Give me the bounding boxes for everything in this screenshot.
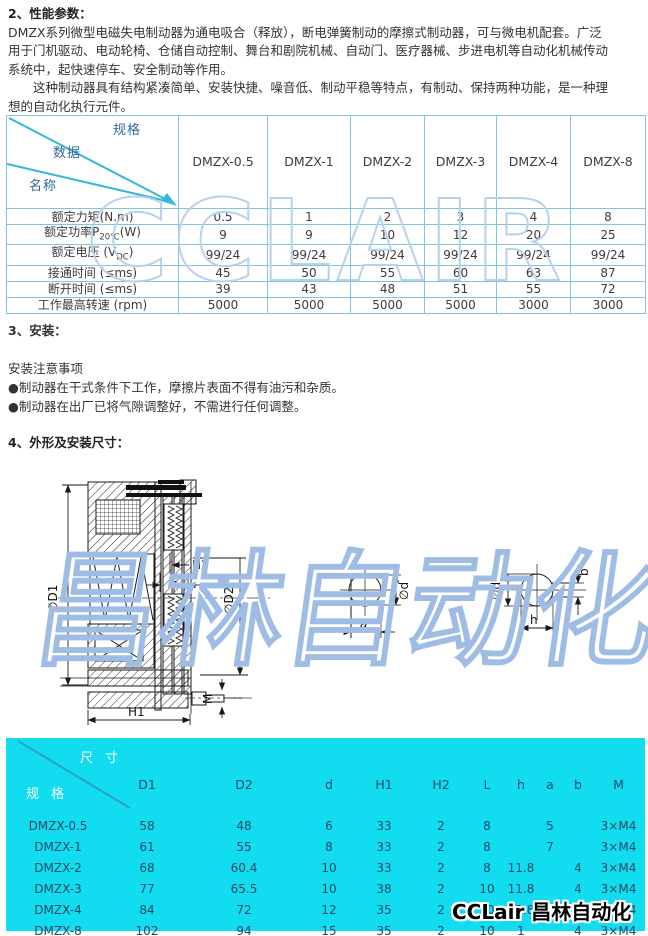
- spec-value-cell: 8: [304, 837, 354, 858]
- dim-label-d2: ∅D2: [222, 587, 236, 614]
- perf-value-cell: 72: [571, 281, 646, 297]
- perf-value-cell: 48: [351, 281, 425, 297]
- spec-model-cell: DMZX-0.5: [6, 816, 110, 837]
- brand-logo: CCLair 昌林自动化: [452, 896, 631, 925]
- perf-value-cell: 3: [425, 209, 497, 225]
- intro-line: 用于门机驱动、电动轮椅、仓储自动控制、舞台和剧院机械、自动门、医疗器械、步进电机…: [8, 42, 644, 61]
- model-header-row: 规格 数据 名称 DMZX-0.5DMZX-1DMZX-2DMZX-3DMZX-…: [7, 116, 646, 209]
- dim-label-d1: ∅D1: [46, 585, 60, 612]
- spec-value-cell: 10: [304, 858, 354, 879]
- dim-label-l: L: [170, 571, 177, 585]
- spec-value-cell: 33: [354, 816, 414, 837]
- intro-line: 想的自动化执行元件。: [8, 98, 644, 117]
- intro-paragraph: DMZX系列微型电磁失电制动器为通电吸合（释放），断电弹簧制动的摩擦式制动器，可…: [8, 24, 644, 117]
- spec-model-cell: DMZX-1: [6, 837, 110, 858]
- section3-title: 3、安装：: [8, 321, 638, 340]
- perf-value-cell: 99/24: [571, 245, 646, 265]
- spec-value-cell: 60.4: [184, 858, 304, 879]
- spec-value-cell: 2: [414, 816, 468, 837]
- spec-value-cell: 33: [354, 837, 414, 858]
- spec-value-cell: 3×M4: [592, 837, 645, 858]
- dim-label-da: ∅d: [397, 582, 411, 600]
- spec-column-header: a: [536, 738, 564, 816]
- dim-label-m: M: [201, 694, 215, 704]
- spec-value-cell: 4: [564, 858, 592, 879]
- perf-value-cell: 12: [425, 225, 497, 245]
- perf-value-cell: 55: [351, 265, 425, 281]
- perf-value-cell: 5000: [425, 297, 497, 313]
- performance-section: 2、性能参数： DMZX系列微型电磁失电制动器为通电吸合（释放），断电弹簧制动的…: [8, 5, 644, 116]
- spec-value-cell: 65.5: [184, 879, 304, 900]
- spec-value-cell: 5: [536, 816, 564, 837]
- dim-label-h2: H2: [192, 558, 209, 572]
- perf-value-cell: 0.5: [179, 209, 268, 225]
- install-section: 3、安装： 安装注意事项 ●制动器在干式条件下工作，摩擦片表面不得有油污和杂质。…: [8, 321, 638, 416]
- perf-value-cell: 87: [571, 265, 646, 281]
- perf-value-cell: 99/24: [268, 245, 351, 265]
- perf-value-cell: 8: [571, 209, 646, 225]
- dim-label-h: h: [530, 613, 538, 627]
- performance-table: 规格 数据 名称 DMZX-0.5DMZX-1DMZX-2DMZX-3DMZX-…: [6, 115, 646, 314]
- spec-value-cell: 8: [468, 816, 506, 837]
- spec-table-row: DMZX-161558332873×M4: [6, 837, 645, 858]
- spec-value-cell: 7: [536, 837, 564, 858]
- spec-value-cell: 33: [354, 858, 414, 879]
- install-note: ●制动器在出厂已将气隙调整好，不需进行任何调整。: [8, 397, 638, 416]
- dim-label-h1: H1: [128, 705, 145, 719]
- spec-value-cell: 2: [414, 837, 468, 858]
- spec-table-row: DMZX-0.558486332853×M4: [6, 816, 645, 837]
- spec-value-cell: 72: [184, 900, 304, 921]
- spec-value-cell: [564, 837, 592, 858]
- perf-value-cell: 4: [497, 209, 571, 225]
- perf-table-row: 额定电压 (VDC)99/2499/2499/2499/2499/2499/24: [7, 245, 646, 265]
- install-notes: ●制动器在干式条件下工作，摩擦片表面不得有油污和杂质。●制动器在出厂已将气隙调整…: [8, 378, 638, 416]
- spec-value-cell: 3×M4: [592, 816, 645, 837]
- spec-value-cell: 61: [110, 837, 184, 858]
- corner-label-name: 名称: [29, 180, 57, 194]
- perf-value-cell: 5000: [268, 297, 351, 313]
- perf-table-row: 断开时间 (≤ms)394348515572: [7, 281, 646, 297]
- perf-value-cell: 5000: [351, 297, 425, 313]
- install-note: ●制动器在干式条件下工作，摩擦片表面不得有油污和杂质。: [8, 378, 638, 397]
- perf-table-row: 接通时间 (≤ms)455055606387: [7, 265, 646, 281]
- spec-value-cell: [536, 858, 564, 879]
- spec-model-cell: DMZX-4: [6, 900, 110, 921]
- spec-column-header: d: [304, 738, 354, 816]
- spec-corner-cell: [6, 738, 110, 816]
- perf-value-cell: 2: [351, 209, 425, 225]
- spec-value-cell: 102: [110, 921, 184, 936]
- spec-value-cell: [564, 816, 592, 837]
- dim-label-a: a: [360, 617, 367, 631]
- intro-line: DMZX系列微型电磁失电制动器为通电吸合（释放），断电弹簧制动的摩擦式制动器，可…: [8, 24, 644, 43]
- spec-column-header: D1: [110, 738, 184, 816]
- perf-value-cell: 99/24: [179, 245, 268, 265]
- perf-value-cell: 55: [497, 281, 571, 297]
- spec-column-header: h: [506, 738, 536, 816]
- perf-value-cell: 5000: [179, 297, 268, 313]
- corner-label-data: 数据: [53, 147, 81, 161]
- spec-column-header: H1: [354, 738, 414, 816]
- model-header-cell: DMZX-2: [351, 116, 425, 209]
- spec-table-row: DMZX-26860.410332811.843×M4: [6, 858, 645, 879]
- spec-value-cell: 2: [414, 858, 468, 879]
- spec-model-cell: DMZX-3: [6, 879, 110, 900]
- perf-value-cell: 43: [268, 281, 351, 297]
- spec-column-header: M: [592, 738, 645, 816]
- spec-value-cell: [506, 816, 536, 837]
- perf-value-cell: 99/24: [425, 245, 497, 265]
- perf-value-cell: 20: [497, 225, 571, 245]
- perf-row-label: 额定功率P20℃(W): [7, 225, 179, 245]
- shaft-keyway-diagram: [504, 564, 586, 632]
- spec-value-cell: 11.8: [506, 858, 536, 879]
- perf-row-label: 额定电压 (VDC): [7, 245, 179, 265]
- spec-value-cell: 12: [304, 900, 354, 921]
- perf-value-cell: 3000: [497, 297, 571, 313]
- spec-header-row: D1D2dH1H2LhabM: [6, 738, 645, 816]
- spec-value-cell: 8: [468, 858, 506, 879]
- document-page: 2、性能参数： DMZX系列微型电磁失电制动器为通电吸合（释放），断电弹簧制动的…: [0, 0, 648, 936]
- model-header-cell: DMZX-1: [268, 116, 351, 209]
- spec-value-cell: 15: [304, 921, 354, 936]
- perf-value-cell: 63: [497, 265, 571, 281]
- shaft-hole-flat-diagram: [337, 564, 401, 638]
- perf-value-cell: 25: [571, 225, 646, 245]
- perf-table-row: 额定力矩(N.m)0.512348: [7, 209, 646, 225]
- corner-diagonal-lines: [7, 116, 177, 208]
- spec-value-cell: 3×M4: [592, 858, 645, 879]
- spec-value-cell: 35: [354, 900, 414, 921]
- intro-line: 系统中，起快速停车、安全制动等作用。: [8, 61, 644, 80]
- dim-label-db: ∅d: [489, 582, 503, 600]
- perf-row-label: 额定力矩(N.m): [7, 209, 179, 225]
- section2-title: 2、性能参数：: [8, 5, 644, 24]
- perf-row-label: 断开时间 (≤ms): [7, 281, 179, 297]
- perf-table-row: 额定功率P20℃(W)9910122025: [7, 225, 646, 245]
- perf-value-cell: 99/24: [351, 245, 425, 265]
- spec-value-cell: 84: [110, 900, 184, 921]
- spec-column-header: b: [564, 738, 592, 816]
- spec-model-cell: DMZX-2: [6, 858, 110, 879]
- model-header-cell: DMZX-8: [571, 116, 646, 209]
- perf-value-cell: 99/24: [497, 245, 571, 265]
- perf-value-cell: 60: [425, 265, 497, 281]
- model-header-cell: DMZX-4: [497, 116, 571, 209]
- spec-value-cell: 58: [110, 816, 184, 837]
- spec-value-cell: 6: [304, 816, 354, 837]
- spec-value-cell: 55: [184, 837, 304, 858]
- perf-value-cell: 50: [268, 265, 351, 281]
- install-subtitle: 安装注意事项: [8, 359, 638, 378]
- spec-model-cell: DMZX-8: [6, 921, 110, 936]
- spec-value-cell: 8: [468, 837, 506, 858]
- spec-value-cell: 35: [354, 921, 414, 936]
- perf-value-cell: 3000: [571, 297, 646, 313]
- spec-value-cell: 38: [354, 879, 414, 900]
- model-header-cell: DMZX-3: [425, 116, 497, 209]
- dim-label-b: b: [577, 568, 591, 576]
- perf-value-cell: 39: [179, 281, 268, 297]
- spec-value-cell: 94: [184, 921, 304, 936]
- spec-value-cell: 48: [184, 816, 304, 837]
- perf-value-cell: 9: [179, 225, 268, 245]
- spec-value-cell: 77: [110, 879, 184, 900]
- perf-value-cell: 45: [179, 265, 268, 281]
- spec-column-header: H2: [414, 738, 468, 816]
- intro-line: 这种制动器具有结构紧凑简单、安装快捷、噪音低、制动平稳等特点，有制动、保持两种功…: [8, 79, 644, 98]
- perf-value-cell: 9: [268, 225, 351, 245]
- spec-value-cell: [506, 837, 536, 858]
- corner-label-spec: 规格: [113, 124, 141, 138]
- perf-value-cell: 10: [351, 225, 425, 245]
- perf-value-cell: 1: [268, 209, 351, 225]
- perf-value-cell: 51: [425, 281, 497, 297]
- brake-cross-section: [58, 480, 270, 714]
- perf-row-label: 接通时间 (≤ms): [7, 265, 179, 281]
- spec-value-cell: 10: [304, 879, 354, 900]
- section4-title: 4、外形及安装尺寸：: [8, 432, 129, 451]
- table-corner-cell: 规格 数据 名称: [7, 116, 179, 209]
- spec-column-header: L: [468, 738, 506, 816]
- technical-drawing: ∅D1 ∅D2 H2 L M H1 ∅d a ∅d b h: [0, 452, 648, 738]
- model-header-cell: DMZX-0.5: [179, 116, 268, 209]
- perf-table-row: 工作最高转速 (rpm)500050005000500030003000: [7, 297, 646, 313]
- perf-row-label: 工作最高转速 (rpm): [7, 297, 179, 313]
- spec-value-cell: 68: [110, 858, 184, 879]
- spec-column-header: D2: [184, 738, 304, 816]
